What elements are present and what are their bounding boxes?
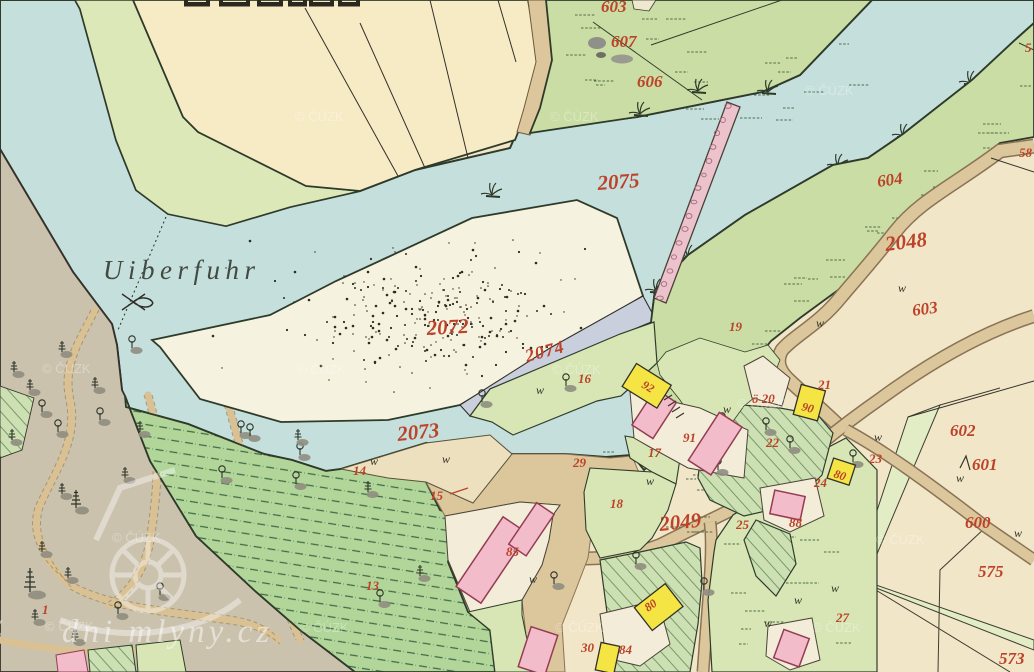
svg-text:w: w xyxy=(442,452,450,466)
svg-text:25: 25 xyxy=(735,517,750,532)
svg-text:17: 17 xyxy=(648,445,662,460)
svg-text:© ČÚZK: © ČÚZK xyxy=(297,362,346,377)
svg-text:575: 575 xyxy=(978,562,1004,581)
svg-text:604: 604 xyxy=(876,169,904,191)
svg-text:w: w xyxy=(831,581,839,595)
svg-text:14: 14 xyxy=(353,463,367,478)
svg-text:85: 85 xyxy=(506,544,520,559)
svg-text:24: 24 xyxy=(813,475,828,490)
svg-text:607: 607 xyxy=(611,32,638,51)
svg-text:18: 18 xyxy=(610,496,624,511)
svg-text:1: 1 xyxy=(42,602,49,617)
svg-text:© ČÚZK: © ČÚZK xyxy=(552,362,601,377)
svg-text:29: 29 xyxy=(572,455,587,470)
svg-text:w: w xyxy=(898,281,906,295)
svg-text:Uiberfuhr: Uiberfuhr xyxy=(103,255,261,285)
svg-text:© ČÚZK: © ČÚZK xyxy=(812,620,861,635)
svg-text:15: 15 xyxy=(430,488,444,503)
svg-text:600: 600 xyxy=(965,513,991,532)
svg-text:606: 606 xyxy=(637,72,663,91)
svg-text:w: w xyxy=(794,593,802,607)
svg-text:602: 602 xyxy=(950,421,976,440)
svg-text:w: w xyxy=(646,474,654,488)
svg-text:22: 22 xyxy=(765,435,780,450)
svg-text:w: w xyxy=(764,616,772,630)
svg-text:603: 603 xyxy=(911,298,939,320)
svg-text:603: 603 xyxy=(601,0,627,16)
svg-text:w: w xyxy=(816,316,824,330)
svg-text:2075: 2075 xyxy=(596,168,641,195)
svg-text:2073: 2073 xyxy=(395,418,440,446)
svg-text:w: w xyxy=(956,471,964,485)
svg-text:w: w xyxy=(874,430,882,444)
svg-text:© ČÚZK: © ČÚZK xyxy=(737,396,786,411)
svg-text:13: 13 xyxy=(366,578,380,593)
svg-text:91: 91 xyxy=(683,430,696,445)
svg-text:w: w xyxy=(529,572,537,586)
svg-text:w: w xyxy=(370,454,378,468)
svg-text:23: 23 xyxy=(868,451,883,466)
svg-text:2049: 2049 xyxy=(657,508,703,536)
svg-text:dni mlyny.cz: dni mlyny.cz xyxy=(62,614,273,650)
svg-text:84: 84 xyxy=(619,642,633,657)
svg-text:2072: 2072 xyxy=(425,314,470,340)
svg-text:w: w xyxy=(1014,526,1022,540)
svg-text:© ČÚZK: © ČÚZK xyxy=(42,361,91,376)
svg-text:30: 30 xyxy=(580,640,595,655)
svg-text:© ČÚZK: © ČÚZK xyxy=(555,620,604,635)
svg-text:58: 58 xyxy=(1019,145,1033,160)
svg-text:z: z xyxy=(0,605,3,647)
svg-text:5: 5 xyxy=(1025,40,1032,55)
svg-text:© ČÚZK: © ČÚZK xyxy=(876,532,925,547)
svg-text:© ČÚZK: © ČÚZK xyxy=(295,109,344,124)
svg-text:88: 88 xyxy=(789,515,803,530)
svg-text:© ČÚZK: © ČÚZK xyxy=(805,83,854,98)
svg-text:w: w xyxy=(723,402,731,416)
svg-text:w: w xyxy=(536,383,544,397)
svg-text:© ČÚZK: © ČÚZK xyxy=(550,109,599,124)
svg-text:573: 573 xyxy=(999,649,1025,668)
svg-text:19: 19 xyxy=(729,319,743,334)
svg-text:601: 601 xyxy=(972,455,998,474)
svg-text:© ČÚZK: © ČÚZK xyxy=(300,620,349,635)
svg-text:21: 21 xyxy=(817,377,831,392)
